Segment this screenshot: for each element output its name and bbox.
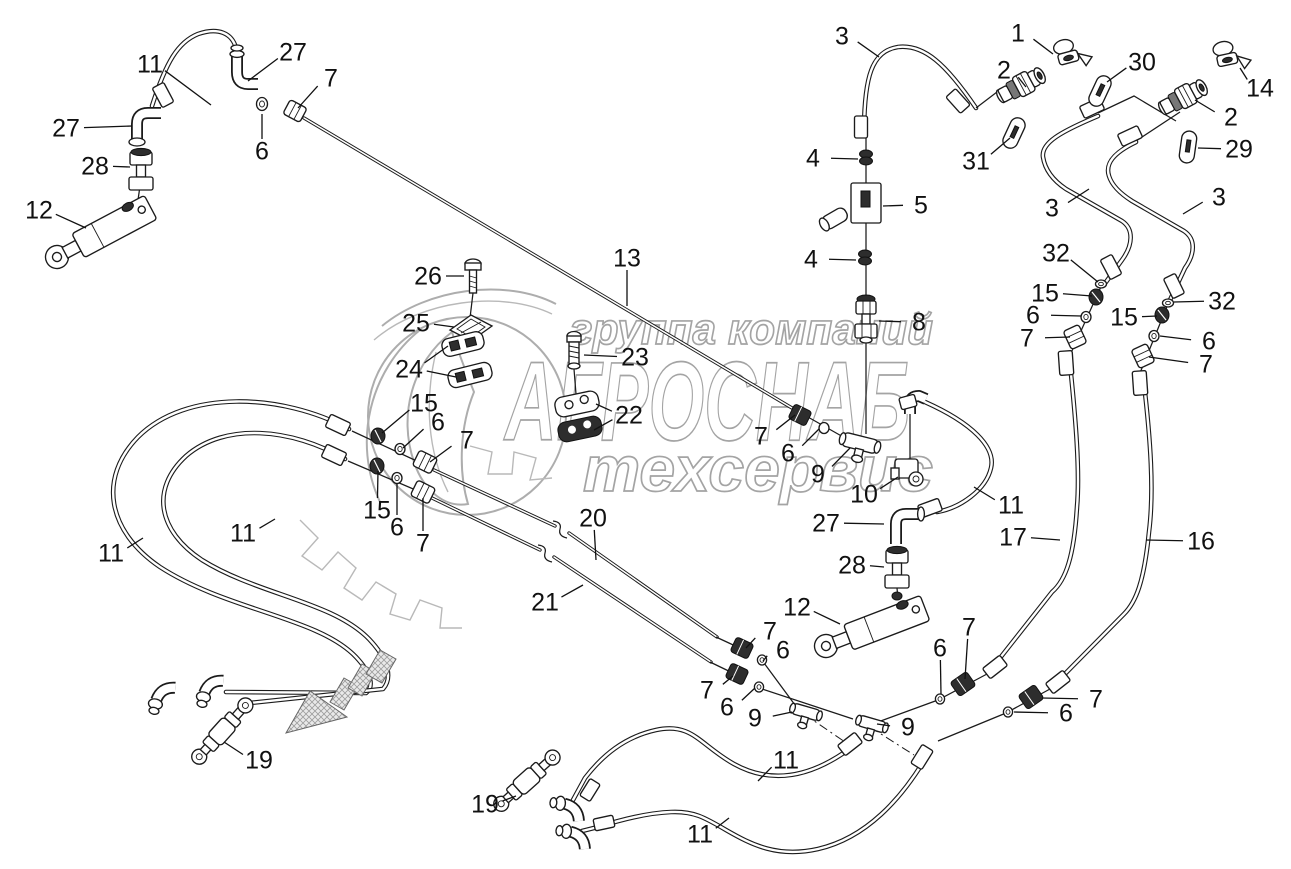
part-number-label: 14 (1246, 75, 1274, 103)
leader-line (84, 126, 132, 128)
part-number-label: 6 (781, 440, 795, 468)
callout-26: 26 (414, 263, 464, 291)
callout-7: 7 (298, 65, 338, 109)
callout-15: 15 (1110, 304, 1157, 332)
fitting-chain-right-left (1063, 280, 1106, 350)
part-number-label: 13 (613, 245, 641, 273)
part-number-label: 23 (621, 344, 649, 372)
leader-line (940, 660, 941, 694)
elbow-fitting-27-top (230, 45, 258, 84)
part-number-label: 27 (52, 115, 80, 143)
part-number-label: 19 (245, 747, 273, 775)
leader-line (1198, 148, 1221, 149)
leader-line (382, 410, 409, 433)
part-number-label: 24 (395, 356, 423, 384)
part-number-label: 3 (835, 23, 849, 51)
leader-line (883, 205, 903, 206)
leader-line (1031, 538, 1060, 540)
part-number-label: 9 (811, 461, 825, 489)
leader-line (1146, 540, 1183, 541)
part-number-label: 15 (363, 497, 391, 525)
leader-line (844, 523, 884, 524)
part-number-label: 7 (700, 677, 714, 705)
callout-15: 15 (1031, 280, 1092, 308)
part-number-label: 6 (255, 138, 269, 166)
leader-line (742, 688, 755, 700)
part-number-label: 3 (1212, 184, 1226, 212)
part-number-label: 11 (687, 821, 713, 849)
part-number-label: 5 (914, 192, 928, 220)
part-number-label: 25 (402, 310, 430, 338)
callout-11: 11 (230, 519, 275, 548)
leader-line (858, 42, 879, 57)
leader-line (1183, 202, 1203, 214)
part-number-label: 27 (812, 510, 840, 538)
part-number-label: 7 (1020, 325, 1034, 353)
callout-11: 11 (687, 818, 729, 849)
leader-line (434, 324, 454, 327)
part-number-label: 32 (1208, 288, 1236, 316)
part-number-label: 9 (901, 714, 915, 742)
part-number-label: 7 (324, 65, 338, 93)
adapter-28-topleft (129, 148, 153, 190)
leader-line (870, 566, 884, 567)
leader-line (377, 471, 378, 498)
part-number-label: 2 (1224, 104, 1238, 132)
leader-line (814, 611, 840, 624)
part-number-label: 6 (1059, 700, 1073, 728)
clamp-24-upper (440, 330, 485, 358)
part-number-label: 29 (1225, 136, 1253, 164)
leader-line (1063, 294, 1092, 296)
part-number-label: 4 (806, 145, 820, 173)
leader-line (561, 585, 583, 597)
plug-30 (1086, 73, 1113, 108)
callout-30: 30 (1107, 49, 1156, 83)
plug-29 (1178, 130, 1197, 164)
leader-line (224, 742, 243, 755)
leader-line (879, 321, 901, 322)
leader-line (773, 712, 792, 716)
seal-4-lower (859, 250, 872, 265)
leader-line (1014, 712, 1048, 713)
leader-line (1107, 68, 1126, 82)
leader-line (1174, 301, 1204, 302)
leader-line (1071, 260, 1098, 282)
callout-27: 27 (812, 510, 884, 538)
leader-line (298, 86, 318, 108)
callout-1: 1 (1011, 20, 1053, 55)
clamp-24-lower (446, 361, 493, 389)
part-number-label: 30 (1128, 49, 1156, 77)
part-number-label: 7 (416, 530, 430, 558)
callout-12: 12 (25, 197, 86, 229)
leader-line (1160, 336, 1191, 340)
ring-6 (819, 423, 829, 434)
callout-11: 11 (974, 487, 1024, 520)
hose-elbow (555, 823, 587, 849)
part-number-label: 19 (471, 791, 499, 819)
hydraulic-cylinder-12-right (810, 594, 930, 663)
part-number-label: 6 (390, 514, 404, 542)
part-number-label: 27 (279, 39, 307, 67)
callout-28: 28 (838, 552, 884, 580)
part-number-label: 4 (804, 246, 818, 274)
leader-line (248, 59, 278, 81)
part-number-label: 11 (230, 520, 256, 548)
callout-15: 15 (363, 471, 391, 525)
plug-31 (1000, 115, 1027, 150)
hydraulic-cylinder-12-left (40, 194, 157, 274)
leader-line (1195, 100, 1215, 112)
part-number-label: 8 (912, 309, 926, 337)
callout-29: 29 (1198, 136, 1253, 164)
part-number-label: 7 (962, 614, 976, 642)
part-number-label: 28 (81, 153, 109, 181)
quick-coupler-2-right (1155, 76, 1211, 120)
part-number-label: 10 (850, 481, 878, 509)
leader-line (113, 166, 130, 167)
dust-cap-14 (1212, 37, 1253, 75)
callout-27: 27 (52, 115, 132, 143)
leader-line (831, 158, 858, 159)
callout-7: 7 (1149, 351, 1213, 379)
callout-14: 14 (1240, 68, 1274, 103)
part-number-label: 11 (98, 540, 124, 568)
hose-elbow (549, 795, 581, 821)
dust-cap-1 (1052, 34, 1094, 73)
callout-17: 17 (999, 524, 1060, 552)
callout-9: 9 (748, 705, 792, 733)
part-number-label: 26 (414, 263, 442, 291)
callout-16: 16 (1146, 528, 1215, 556)
part-number-label: 6 (776, 637, 790, 665)
leader-line (403, 429, 424, 448)
callout-28: 28 (81, 153, 130, 181)
seal-4-upper (860, 150, 873, 165)
part-number-label: 15 (1110, 304, 1138, 332)
adapter-28-mid (885, 546, 909, 600)
callout-3: 3 (1183, 184, 1226, 215)
part-number-label: 17 (999, 524, 1027, 552)
part-number-label: 7 (763, 618, 777, 646)
callout-6: 6 (933, 635, 947, 695)
part-number-label: 11 (137, 51, 163, 79)
part-number-label: 12 (783, 594, 811, 622)
part-number-label: 28 (838, 552, 866, 580)
callout-12: 12 (783, 594, 840, 625)
part-number-label: 6 (720, 694, 734, 722)
callout-25: 25 (402, 310, 454, 338)
part-number-label: 2 (997, 57, 1011, 85)
leader-line (829, 259, 856, 260)
hose-elbow (146, 683, 175, 718)
leader-line (1045, 337, 1070, 338)
part-number-label: 31 (962, 148, 990, 176)
callout-19: 19 (224, 742, 273, 775)
callout-7: 7 (1020, 325, 1070, 353)
leader-line (1051, 315, 1081, 316)
callout-3: 3 (1045, 189, 1089, 223)
part-number-label: 20 (579, 505, 607, 533)
elbow-fitting-27-mid (896, 507, 924, 544)
part-number-label: 7 (1199, 351, 1213, 379)
part-number-label: 7 (460, 427, 474, 455)
part-number-label: 11 (773, 747, 799, 775)
leader-line (56, 214, 86, 228)
callout-2: 2 (1195, 100, 1238, 132)
leader-line (594, 530, 596, 560)
parts-diagram-page: группа компаний АГРОСНАБ техсервис (0, 0, 1291, 869)
leader-line (1033, 39, 1053, 54)
callout-11: 11 (98, 538, 143, 568)
callout-6: 6 (255, 114, 269, 166)
part-number-label: 3 (1045, 195, 1059, 223)
part-number-label: 7 (1089, 686, 1103, 714)
bolt-26 (465, 259, 481, 318)
hydraulic-lines-diagram: группа компаний АГРОСНАБ техсервис (0, 0, 1291, 869)
hose-elbow (194, 676, 223, 711)
part-number-label: 1 (1011, 20, 1025, 48)
part-number-label: 11 (998, 492, 1024, 520)
callout-32: 32 (1042, 240, 1098, 283)
part-number-label: 9 (748, 705, 762, 733)
elbow-fitting-27-topleft (129, 113, 161, 146)
callout-21: 21 (531, 585, 583, 617)
part-number-label: 32 (1042, 240, 1070, 268)
leader-line (1142, 316, 1157, 317)
callout-27: 27 (248, 39, 307, 82)
leader-line (1149, 357, 1188, 363)
part-number-label: 6 (431, 409, 445, 437)
ring-6 (257, 98, 268, 111)
bottom-fittings (725, 637, 1044, 717)
part-number-label: 22 (615, 402, 643, 430)
callout-31: 31 (962, 138, 1010, 176)
callout-7: 7 (962, 614, 976, 680)
part-number-label: 6 (933, 635, 947, 663)
callout-4: 4 (804, 246, 856, 274)
callout-4: 4 (806, 145, 858, 173)
callout-13: 13 (613, 245, 641, 307)
part-number-label: 21 (531, 589, 559, 617)
part-number-label: 12 (25, 197, 53, 225)
part-number-label: 16 (1187, 528, 1215, 556)
leader-line (259, 519, 275, 528)
tee-block-5 (817, 183, 881, 233)
callout-5: 5 (883, 192, 928, 220)
part-number-label: 7 (754, 423, 768, 451)
callout-7: 7 (746, 618, 777, 649)
callout-3: 3 (835, 23, 879, 58)
